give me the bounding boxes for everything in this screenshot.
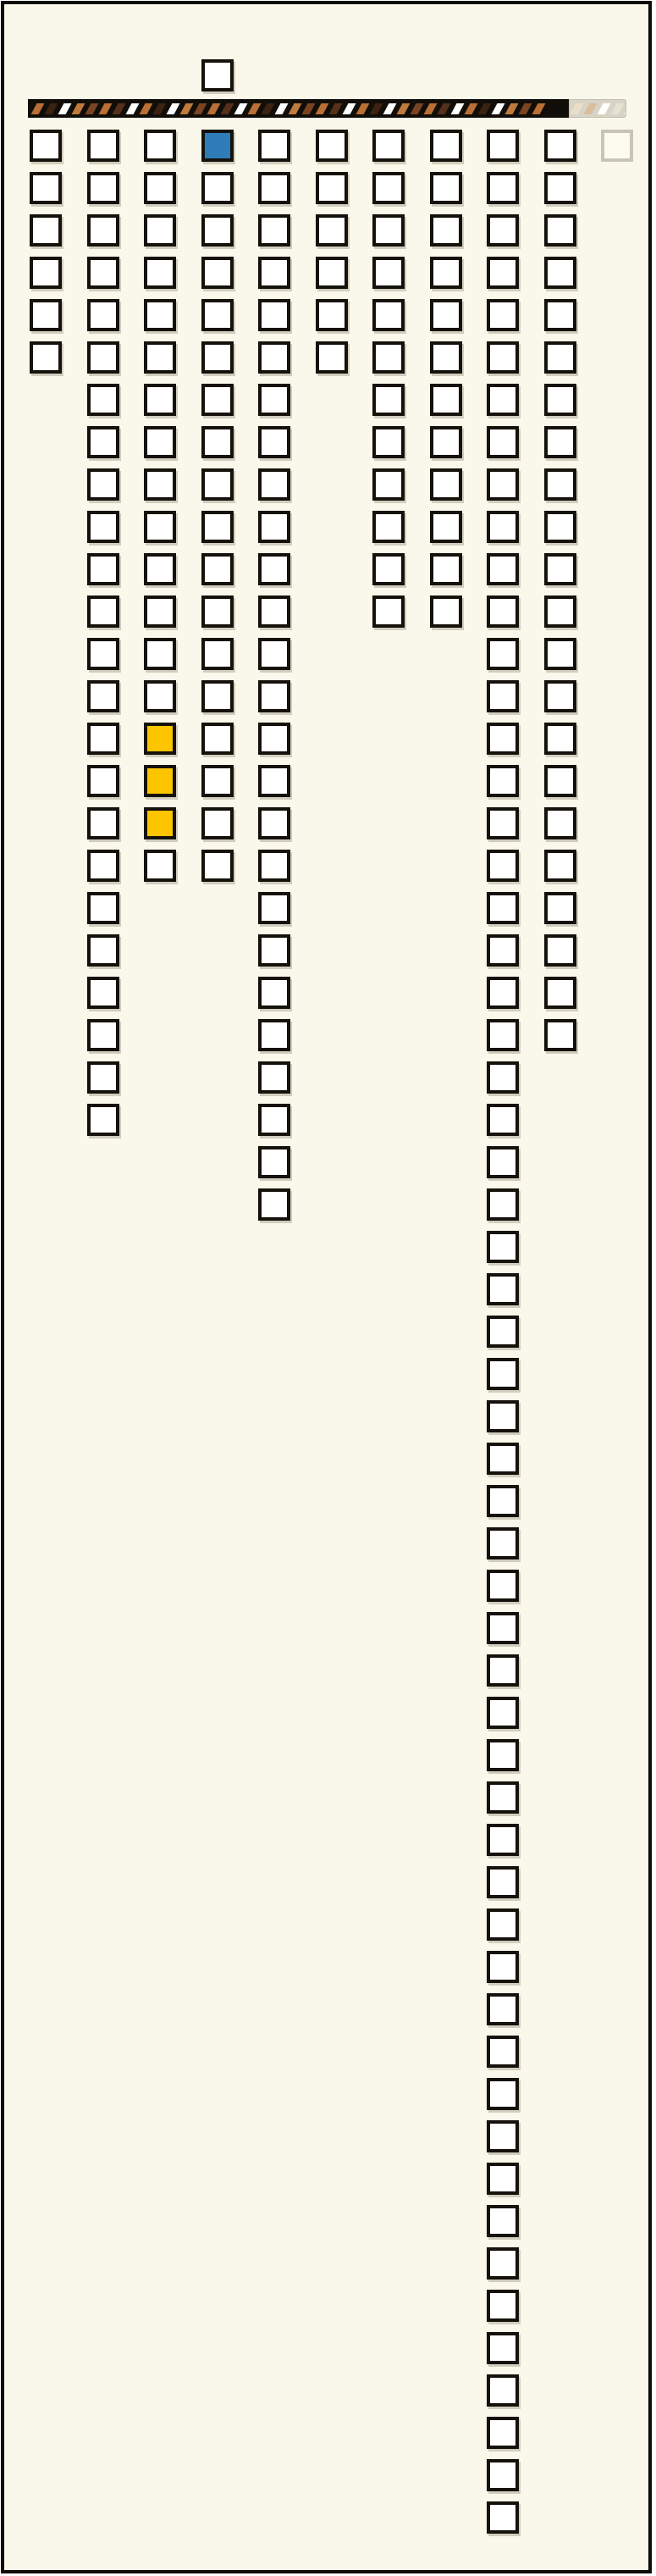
grid-square[interactable] [201,680,234,712]
grid-square[interactable] [201,299,234,331]
grid-square[interactable] [258,1188,290,1221]
grid-square[interactable] [258,257,290,289]
grid-square[interactable] [372,172,405,204]
grid-square[interactable] [258,426,290,458]
grid-square[interactable] [544,723,576,755]
grid-square[interactable] [487,2247,519,2280]
grid-square[interactable] [430,257,462,289]
grid-square[interactable] [487,1781,519,1814]
bar-ghost-stripe [584,103,598,114]
bar-stripe [356,103,370,114]
grid-square[interactable] [201,426,234,458]
grid-square[interactable] [258,1061,290,1094]
grid-square[interactable] [544,172,576,204]
grid-square[interactable] [201,850,234,882]
grid-square[interactable] [372,299,405,331]
grid-square[interactable] [544,807,576,839]
grid-square[interactable] [201,596,234,628]
grid-square[interactable] [201,59,234,91]
grid-square[interactable] [144,384,176,416]
grid-square[interactable] [430,426,462,458]
grid-square[interactable] [144,511,176,543]
grid-square[interactable] [87,468,119,501]
grid-square[interactable] [258,977,290,1009]
grid-square[interactable] [430,341,462,374]
grid-square[interactable] [87,341,119,374]
grid-square[interactable] [487,723,519,755]
grid-square[interactable] [144,130,176,162]
grid-square[interactable] [372,468,405,501]
grid-square-faded [601,130,633,162]
grid-square[interactable] [201,341,234,374]
grid-square[interactable] [87,977,119,1009]
grid-square[interactable] [201,511,234,543]
bar-stripe [411,103,424,114]
bar-stripe [167,103,180,114]
bar-stripe [180,103,194,114]
grid-square[interactable] [87,172,119,204]
grid-square[interactable] [487,1104,519,1136]
grid-square[interactable] [30,172,62,204]
grid-square[interactable] [87,850,119,882]
grid-square[interactable] [487,1061,519,1094]
grid-square[interactable] [258,723,290,755]
bar-stripe [72,103,85,114]
grid-square[interactable] [144,172,176,204]
grid-square[interactable] [316,130,348,162]
grid-square[interactable] [487,892,519,924]
grid-square[interactable] [544,977,576,1009]
grid-square[interactable] [87,680,119,712]
bar-stripe [221,103,234,114]
grid-square[interactable] [544,765,576,797]
bar-stripe [532,103,546,114]
grid-square[interactable] [201,384,234,416]
grid-square[interactable] [430,299,462,331]
grid-square[interactable] [30,299,62,331]
grid-square[interactable] [487,214,519,247]
bar-stripe [505,103,519,114]
grid-square[interactable] [258,765,290,797]
grid-square[interactable] [487,1358,519,1390]
grid-square[interactable] [487,1570,519,1602]
grid-square[interactable] [544,468,576,501]
bar-stripe [126,103,140,114]
grid-square[interactable] [544,214,576,247]
grid-square[interactable] [544,553,576,585]
grid-square[interactable] [258,511,290,543]
grid-square[interactable] [258,680,290,712]
bar-stripe [492,103,505,114]
grid-square[interactable] [316,172,348,204]
grid-square[interactable] [258,130,290,162]
grid-square[interactable] [544,130,576,162]
grid-square[interactable] [487,299,519,331]
grid-square[interactable] [487,765,519,797]
grid-square[interactable] [372,384,405,416]
grid-square[interactable] [144,596,176,628]
grid-square[interactable] [487,2459,519,2491]
grid-square[interactable] [201,172,234,204]
grid-square[interactable] [201,723,234,755]
grid-square-blue[interactable] [201,130,234,162]
bar-stripe [478,103,492,114]
grid-square[interactable] [487,934,519,967]
grid-square[interactable] [87,1061,119,1094]
grid-square[interactable] [487,1231,519,1263]
grid-square[interactable] [87,511,119,543]
grid-square[interactable] [258,1146,290,1178]
grid-square[interactable] [316,299,348,331]
bar-stripe [140,103,153,114]
grid-square[interactable] [144,341,176,374]
grid-square[interactable] [144,638,176,670]
grid-square[interactable] [544,257,576,289]
bar-stripe [113,103,126,114]
bar-stripe [451,103,465,114]
bar-stripe [289,103,302,114]
grid-square[interactable] [487,1824,519,1856]
grid-square[interactable] [487,2120,519,2152]
grid-square-yellow[interactable] [144,723,176,755]
grid-square[interactable] [201,553,234,585]
grid-square[interactable] [30,214,62,247]
bar-stripe [370,103,383,114]
bar-stripe [262,103,275,114]
grid-square[interactable] [487,384,519,416]
grid-square[interactable] [487,1273,519,1305]
grid-square[interactable] [487,172,519,204]
grid-square[interactable] [544,892,576,924]
bar-stripe [234,103,248,114]
grid-square[interactable] [258,892,290,924]
grid-square[interactable] [487,850,519,882]
grid-square[interactable] [544,1019,576,1051]
grid-square[interactable] [487,1443,519,1475]
grid-square[interactable] [316,341,348,374]
grid-square[interactable] [430,596,462,628]
bar-stripe [424,103,438,114]
bar-stripe [153,103,167,114]
grid-square[interactable] [430,553,462,585]
grid-square[interactable] [30,341,62,374]
grid-square[interactable] [487,1951,519,1983]
grid-square[interactable] [487,468,519,501]
bar-stripe [85,103,99,114]
grid-square[interactable] [487,1019,519,1051]
bar-stripe [329,103,343,114]
grid-square[interactable] [87,765,119,797]
bar-ghost-stripe [625,103,626,114]
grid-square[interactable] [201,765,234,797]
grid-square[interactable] [544,299,576,331]
striped-progress-bar [28,99,626,118]
grid-square[interactable] [144,468,176,501]
grid-square[interactable] [487,1188,519,1221]
grid-square[interactable] [487,1400,519,1432]
grid-square[interactable] [487,257,519,289]
bar-stripe [31,103,45,114]
grid-square[interactable] [430,384,462,416]
grid-square[interactable] [487,2290,519,2322]
grid-square[interactable] [487,1527,519,1559]
grid-square[interactable] [372,426,405,458]
grid-square[interactable] [258,384,290,416]
grid-square[interactable] [487,511,519,543]
grid-square[interactable] [487,1866,519,1898]
striped-bar-ghost-segment [569,99,626,118]
grid-square[interactable] [258,553,290,585]
grid-square[interactable] [487,2036,519,2068]
grid-square[interactable] [487,1316,519,1348]
grid-square[interactable] [487,1739,519,1771]
grid-square[interactable] [87,426,119,458]
grid-square[interactable] [544,384,576,416]
grid-square[interactable] [544,680,576,712]
grid-square[interactable] [487,1908,519,1941]
grid-square[interactable] [487,680,519,712]
grid-square[interactable] [487,130,519,162]
grid-square[interactable] [372,130,405,162]
grid-square[interactable] [430,214,462,247]
grid-square[interactable] [258,807,290,839]
grid-square[interactable] [87,892,119,924]
grid-square[interactable] [487,2417,519,2449]
grid-square[interactable] [87,384,119,416]
grid-square-yellow[interactable] [144,807,176,839]
grid-square[interactable] [87,553,119,585]
grid-square[interactable] [487,2374,519,2407]
bar-stripe [343,103,356,114]
grid-square[interactable] [487,1993,519,2025]
grid-square[interactable] [544,596,576,628]
grid-square[interactable] [544,511,576,543]
bar-stripe [519,103,532,114]
grid-square[interactable] [144,553,176,585]
grid-square[interactable] [487,638,519,670]
bar-stripe [58,103,72,114]
grid-square[interactable] [487,977,519,1009]
grid-square[interactable] [87,1104,119,1136]
grid-square[interactable] [87,807,119,839]
grid-square[interactable] [487,553,519,585]
striped-bar-active-segment [28,99,569,118]
grid-square[interactable] [201,257,234,289]
bar-stripe [99,103,113,114]
grid-square[interactable] [258,934,290,967]
grid-square[interactable] [87,596,119,628]
grid-square[interactable] [258,596,290,628]
grid-square[interactable] [316,214,348,247]
grid-square[interactable] [372,511,405,543]
grid-square[interactable] [487,596,519,628]
bar-stripe [194,103,207,114]
grid-square[interactable] [372,553,405,585]
grid-square[interactable] [430,130,462,162]
grid-square[interactable] [487,2332,519,2364]
grid-square[interactable] [87,638,119,670]
grid-square[interactable] [87,299,119,331]
grid-square[interactable] [487,341,519,374]
grid-square[interactable] [430,172,462,204]
grid-square[interactable] [144,214,176,247]
grid-square[interactable] [87,934,119,967]
grid-square[interactable] [487,1654,519,1687]
grid-square[interactable] [372,341,405,374]
grid-square[interactable] [258,638,290,670]
grid-square[interactable] [372,257,405,289]
grid-square[interactable] [30,130,62,162]
grid-square[interactable] [487,2163,519,2195]
grid-square[interactable] [487,1485,519,1517]
grid-square[interactable] [487,426,519,458]
bar-stripe [438,103,451,114]
grid-square[interactable] [258,172,290,204]
grid-square[interactable] [487,2205,519,2237]
bar-stripe [248,103,262,114]
grid-square[interactable] [544,341,576,374]
grid-square[interactable] [258,1104,290,1136]
grid-square[interactable] [316,257,348,289]
bar-stripe [465,103,478,114]
bar-ghost-stripe [571,103,584,114]
grid-square[interactable] [258,1019,290,1051]
bar-stripe [45,103,58,114]
grid-square[interactable] [87,130,119,162]
grid-square[interactable] [372,596,405,628]
grid-square[interactable] [430,511,462,543]
grid-square[interactable] [258,468,290,501]
grid-square[interactable] [487,1146,519,1178]
grid-square[interactable] [87,723,119,755]
grid-square[interactable] [487,2501,519,2534]
grid-square[interactable] [487,807,519,839]
grid-square[interactable] [30,257,62,289]
bar-ghost-stripe [611,103,625,114]
bar-stripe [397,103,411,114]
grid-square[interactable] [544,426,576,458]
grid-square[interactable] [544,934,576,967]
grid-square[interactable] [258,299,290,331]
grid-square[interactable] [144,426,176,458]
bar-stripe [316,103,329,114]
grid-square[interactable] [372,214,405,247]
grid-square[interactable] [201,638,234,670]
grid-square[interactable] [544,638,576,670]
grid-square[interactable] [144,850,176,882]
bar-stripe [302,103,316,114]
grid-square[interactable] [544,850,576,882]
grid-square[interactable] [144,257,176,289]
grid-square[interactable] [87,1019,119,1051]
grid-square-yellow[interactable] [144,765,176,797]
grid-square[interactable] [144,680,176,712]
bar-ghost-stripe [598,103,611,114]
grid-square[interactable] [201,468,234,501]
grid-square[interactable] [144,299,176,331]
bar-stripe [383,103,397,114]
grid-square[interactable] [258,850,290,882]
bar-stripe [275,103,289,114]
grid-square[interactable] [258,341,290,374]
grid-square[interactable] [487,1612,519,1644]
grid-square[interactable] [258,214,290,247]
grid-square[interactable] [87,214,119,247]
grid-square[interactable] [487,1697,519,1729]
grid-square[interactable] [201,807,234,839]
grid-square[interactable] [201,214,234,247]
bar-stripe [207,103,221,114]
grid-square[interactable] [487,2078,519,2110]
grid-square[interactable] [430,468,462,501]
grid-square[interactable] [87,257,119,289]
